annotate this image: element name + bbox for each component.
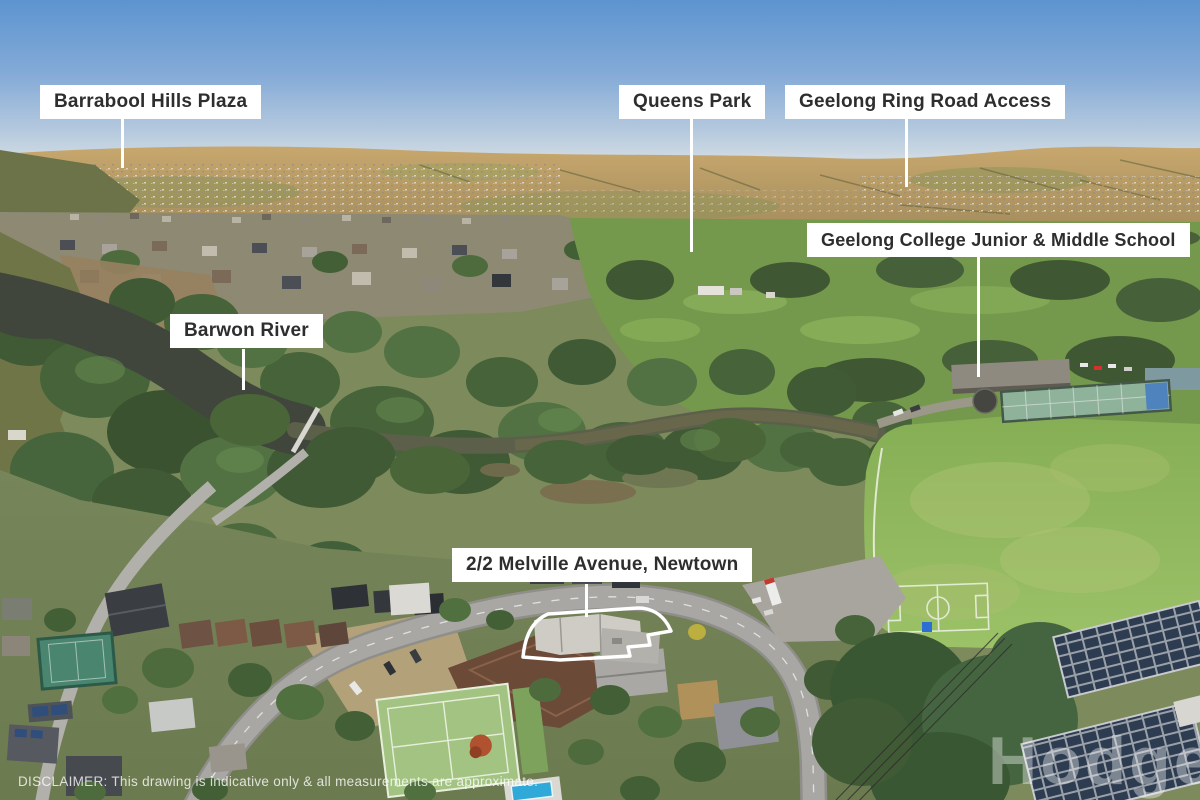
label-property-address: 2/2 Melville Avenue, Newtown (452, 548, 752, 582)
annotated-aerial-map: Barrabool Hills Plaza Queens Park Geelon… (0, 0, 1200, 800)
leader-line-barrabool (121, 118, 124, 168)
watermark-logo: Hodges (988, 722, 1200, 800)
leader-line-barwon-river (242, 349, 245, 390)
label-queens-park: Queens Park (619, 85, 765, 119)
disclaimer-text: DISCLAIMER: This drawing is indicative o… (18, 774, 538, 789)
leader-line-queens-park (690, 118, 693, 252)
label-barwon-river: Barwon River (170, 314, 323, 348)
label-barrabool-hills-plaza: Barrabool Hills Plaza (40, 85, 261, 119)
leader-line-college (977, 256, 980, 377)
leader-line-ring-road (905, 118, 908, 187)
tent (922, 622, 932, 632)
label-geelong-college: Geelong College Junior & Middle School (807, 223, 1190, 257)
leader-line-property (585, 584, 588, 617)
aerial-photo-background (0, 0, 1200, 800)
label-geelong-ring-road-access: Geelong Ring Road Access (785, 85, 1065, 119)
sky (0, 0, 1200, 168)
